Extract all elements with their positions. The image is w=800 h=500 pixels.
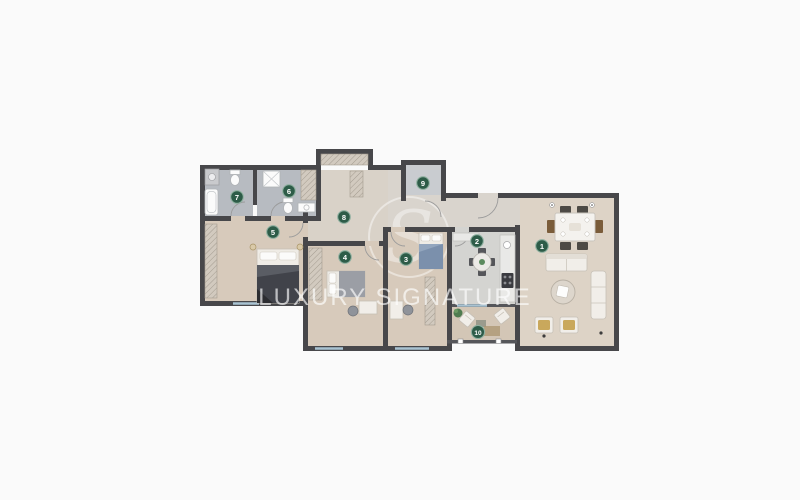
floorplan-drawing: S	[197, 149, 621, 354]
outdoor-mat	[484, 326, 500, 336]
sofa-icon	[546, 254, 587, 271]
bath-closet-icon	[301, 170, 316, 200]
shower-icon	[263, 171, 280, 187]
balcony-post	[496, 339, 501, 344]
coffee-table-icon	[551, 280, 575, 304]
dining-chair-icon	[595, 220, 603, 233]
svg-text:6: 6	[287, 187, 291, 196]
table-plant-icon	[479, 259, 485, 265]
wardrobe-icon	[205, 224, 217, 298]
bed-icon	[419, 233, 443, 269]
niche-closet-icon	[321, 154, 368, 165]
sink-icon	[298, 203, 315, 212]
svg-text:8: 8	[342, 213, 346, 222]
sink-icon	[209, 174, 216, 181]
room-badge-5: 5	[267, 226, 280, 239]
toilet-icon	[230, 170, 240, 186]
svg-text:1: 1	[540, 242, 544, 251]
room-badge-3: 3	[400, 253, 413, 266]
toilet-icon	[283, 198, 293, 214]
svg-text:7: 7	[235, 193, 239, 202]
svg-text:3: 3	[404, 255, 408, 264]
bed-icon	[327, 271, 365, 297]
wardrobe-icon	[425, 277, 435, 325]
entry-corridor-floor	[446, 198, 520, 227]
hall-closet-icon	[350, 171, 363, 197]
kitchen-sink-icon	[504, 242, 511, 249]
bathtub-icon	[205, 189, 218, 215]
svg-text:2: 2	[475, 237, 479, 246]
room-badge-1: 1	[536, 240, 549, 253]
floorplan-page: S	[0, 0, 800, 500]
double-bed-icon	[257, 249, 299, 303]
room-badge-4: 4	[339, 251, 352, 264]
room-badge-9: 9	[417, 177, 430, 190]
room-badge-7: 7	[231, 191, 244, 204]
room-badge-6: 6	[283, 185, 296, 198]
dining-chair-icon	[547, 220, 555, 233]
stove-icon	[502, 273, 514, 288]
svg-text:10: 10	[474, 330, 482, 337]
armchair-icon	[535, 317, 553, 333]
bedroom-5	[250, 244, 303, 303]
chaise-sofa-icon	[591, 271, 606, 319]
desk-icon	[390, 301, 403, 319]
desk-icon	[359, 301, 377, 314]
armchair-icon	[560, 317, 578, 333]
svg-text:9: 9	[421, 179, 425, 188]
wardrobe-icon	[309, 248, 322, 300]
desk-chair-icon	[403, 305, 413, 315]
svg-text:5: 5	[271, 228, 275, 237]
room-badge-8: 8	[338, 211, 351, 224]
balcony-post	[458, 339, 463, 344]
room-badge-10: 10	[471, 325, 484, 338]
desk-chair-icon	[348, 306, 358, 316]
room-badge-2: 2	[471, 235, 484, 248]
nightstand-lamp-icon	[250, 244, 256, 250]
nightstand-lamp-icon	[297, 244, 303, 250]
